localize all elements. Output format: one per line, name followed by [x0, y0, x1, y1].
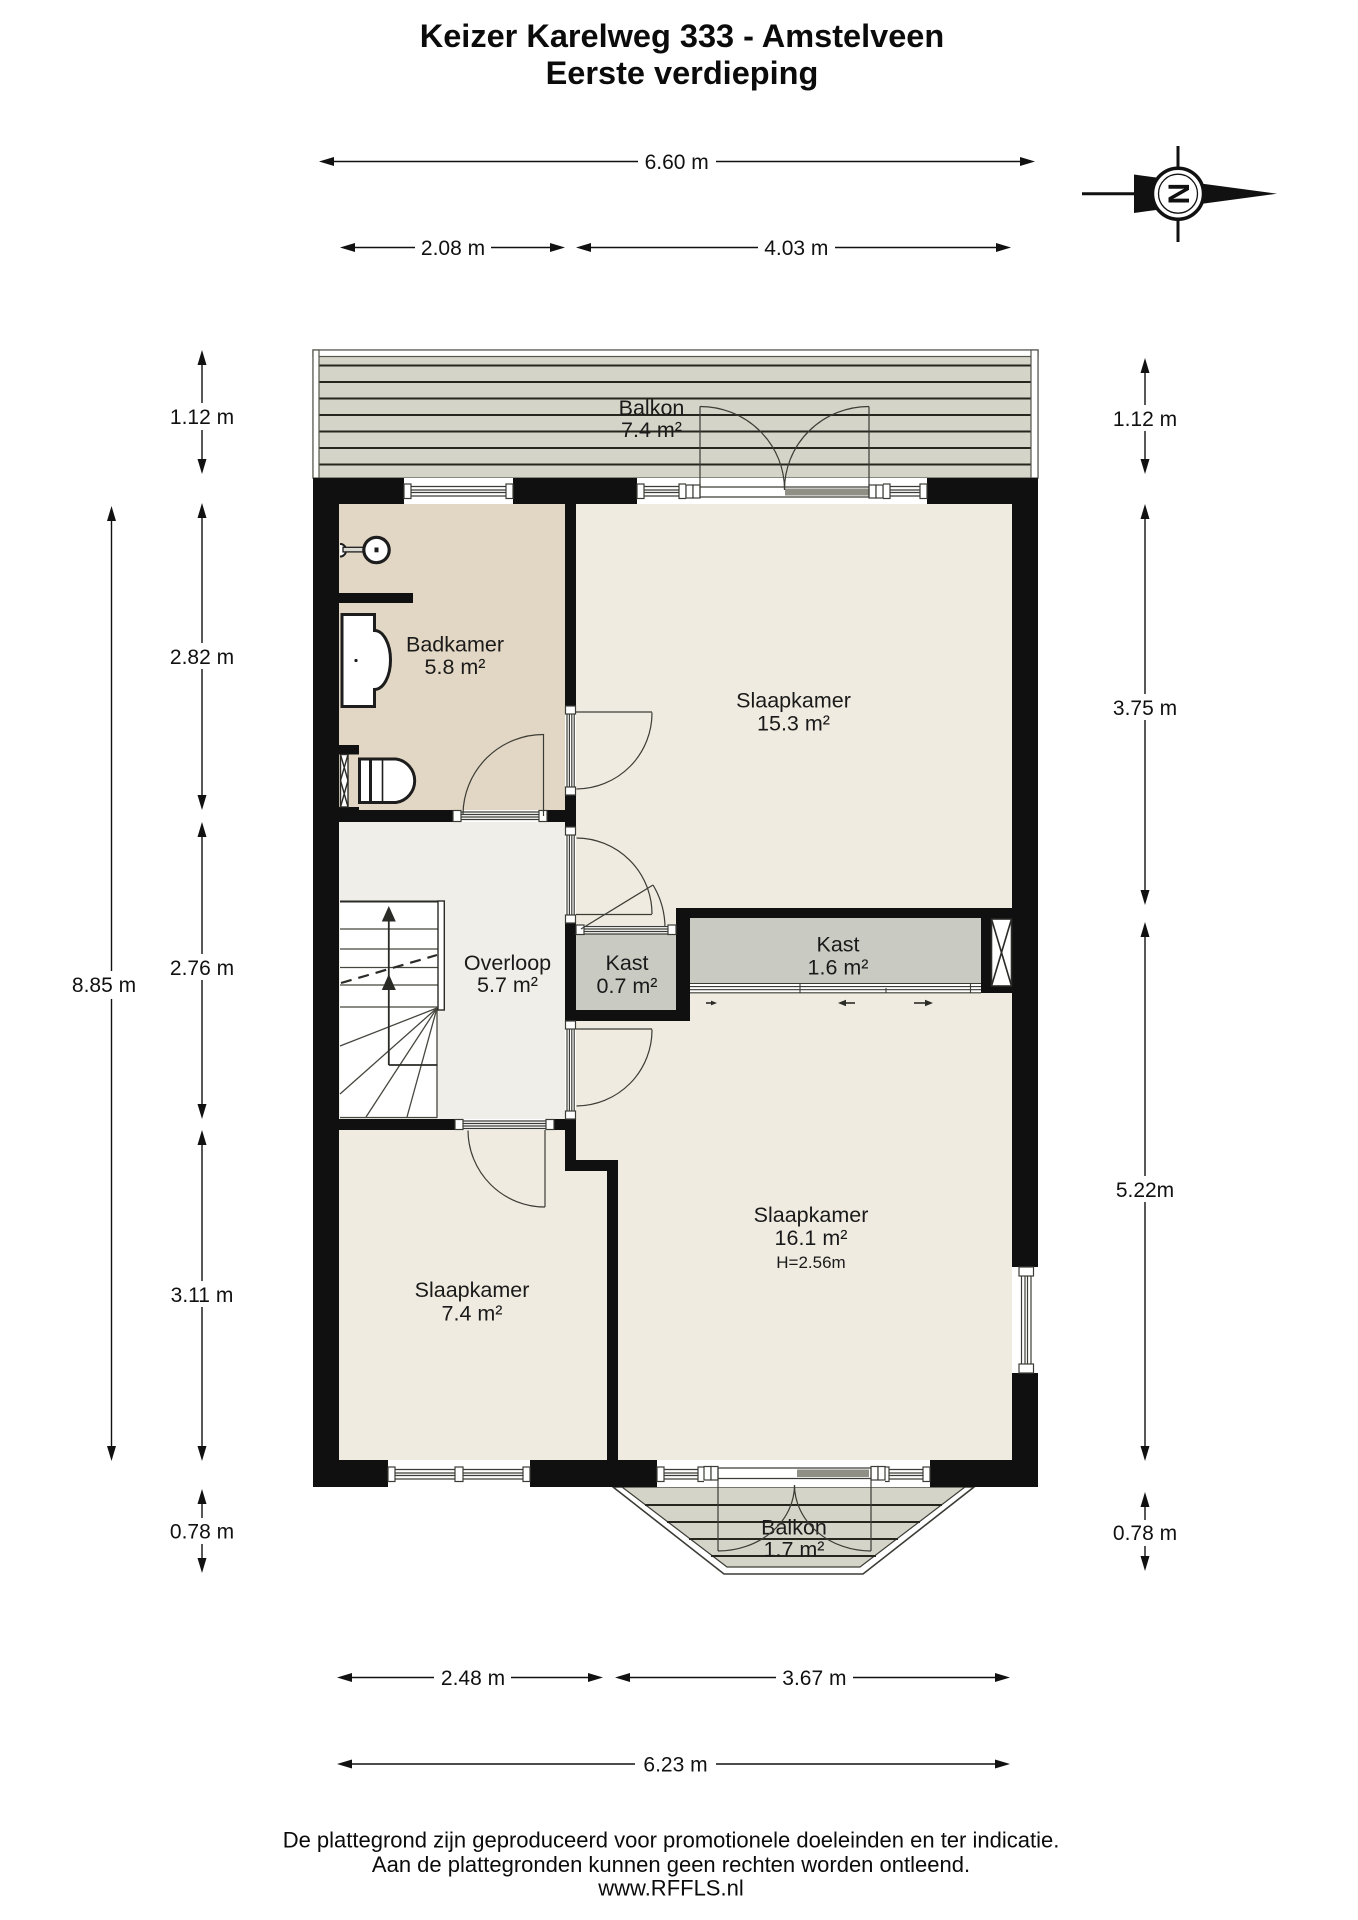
svg-text:8.85 m: 8.85 m [72, 974, 136, 997]
svg-text:2.82 m: 2.82 m [170, 646, 234, 669]
svg-text:3.67 m: 3.67 m [782, 1667, 846, 1690]
svg-text:Keizer Karelweg 333 - Amstelve: Keizer Karelweg 333 - Amstelveen [420, 18, 944, 54]
svg-text:7.4 m²: 7.4 m² [442, 1302, 503, 1326]
svg-text:5.8 m²: 5.8 m² [425, 655, 486, 679]
svg-text:3.75 m: 3.75 m [1113, 697, 1177, 720]
svg-text:De plattegrond zijn geproducee: De plattegrond zijn geproduceerd voor pr… [283, 1828, 1060, 1853]
svg-text:Aan de plattegronden kunnen ge: Aan de plattegronden kunnen geen rechten… [372, 1852, 970, 1877]
svg-text:2.08 m: 2.08 m [421, 237, 485, 260]
svg-text:4.03 m: 4.03 m [764, 237, 828, 260]
svg-text:www.RFFLS.nl: www.RFFLS.nl [597, 1876, 743, 1901]
svg-text:6.23 m: 6.23 m [643, 1754, 707, 1777]
svg-text:Slaapkamer: Slaapkamer [415, 1278, 530, 1302]
svg-text:N: N [1162, 183, 1195, 205]
svg-text:Kast: Kast [816, 933, 859, 957]
svg-text:1.6 m²: 1.6 m² [808, 956, 869, 980]
svg-text:15.3 m²: 15.3 m² [757, 712, 830, 736]
svg-text:6.60 m: 6.60 m [645, 151, 709, 174]
svg-text:0.7 m²: 0.7 m² [597, 974, 658, 998]
svg-text:H=2.56m: H=2.56m [776, 1253, 845, 1272]
svg-text:2.48 m: 2.48 m [441, 1667, 505, 1690]
svg-text:2.76 m: 2.76 m [170, 957, 234, 980]
svg-text:1.12 m: 1.12 m [1113, 408, 1177, 431]
svg-text:Overloop: Overloop [464, 951, 551, 975]
svg-text:1.12 m: 1.12 m [170, 406, 234, 429]
svg-text:0.78 m: 0.78 m [1113, 1522, 1177, 1545]
svg-text:16.1 m²: 16.1 m² [775, 1226, 848, 1250]
svg-text:Balkon: Balkon [619, 396, 685, 420]
svg-text:Eerste verdieping: Eerste verdieping [546, 55, 819, 91]
svg-text:3.11 m: 3.11 m [171, 1284, 234, 1307]
svg-text:Badkamer: Badkamer [406, 633, 504, 657]
svg-text:7.4 m²: 7.4 m² [621, 418, 682, 442]
svg-text:0.78 m: 0.78 m [170, 1521, 234, 1544]
svg-text:Slaapkamer: Slaapkamer [754, 1203, 869, 1227]
svg-text:Slaapkamer: Slaapkamer [736, 689, 851, 713]
svg-text:Balkon: Balkon [761, 1516, 827, 1540]
svg-text:5.22m: 5.22m [1116, 1179, 1174, 1202]
svg-text:1.7 m²: 1.7 m² [764, 1538, 825, 1562]
svg-text:Kast: Kast [605, 951, 648, 975]
svg-text:5.7 m²: 5.7 m² [477, 973, 538, 997]
